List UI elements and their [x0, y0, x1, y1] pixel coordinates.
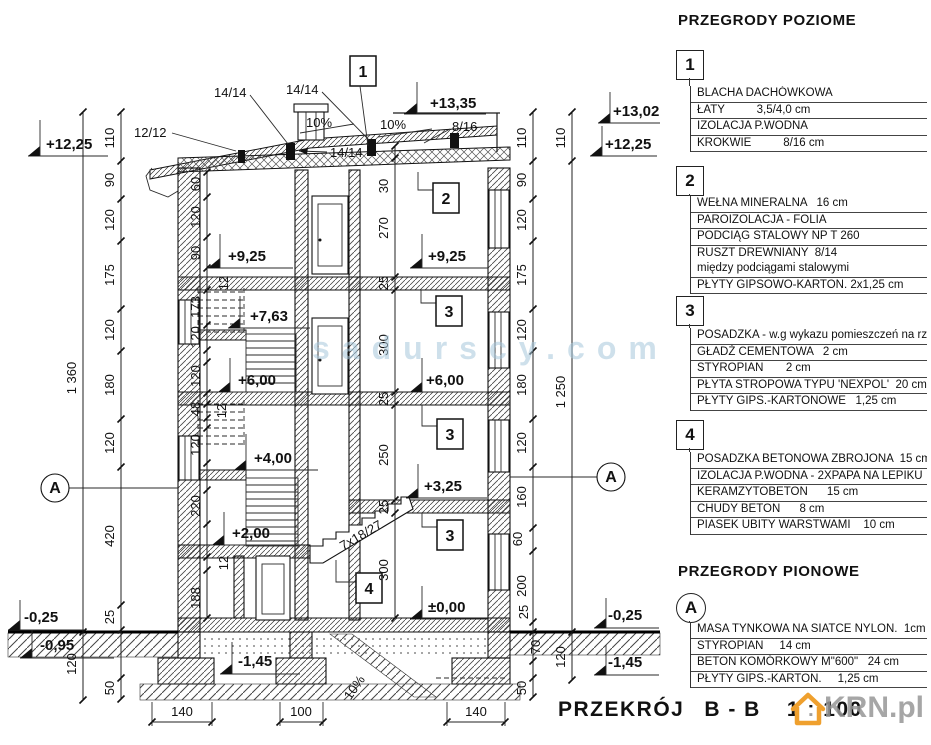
dimension-chain-right-outer: 110 1 250 120: [553, 112, 572, 680]
svg-text:+3,25: +3,25: [424, 478, 462, 495]
svg-text:220: 220: [188, 495, 203, 517]
drawing-title: PRZEKRÓJB - B1 : 100: [558, 698, 863, 722]
svg-text:120: 120: [102, 209, 117, 231]
legend-row: POSADZKA BETONOWA ZBROJONA 15 cm: [691, 452, 927, 469]
svg-text:30: 30: [376, 179, 391, 193]
legend-row: IZOLACJA P.WODNA - 2XPAPA NA LEPIKU: [691, 469, 927, 486]
svg-text:250: 250: [376, 444, 391, 466]
legend-row: WEŁNA MINERALNA 16 cm: [691, 196, 927, 213]
dimension-chain-left: 110 90 120 175 120 180 120 420 25 50: [102, 112, 121, 699]
post1-label: 14/14: [214, 85, 247, 100]
legend-marker-2: 2: [676, 166, 704, 196]
svg-text:+4,00: +4,00: [254, 450, 292, 467]
svg-text:90: 90: [514, 173, 529, 187]
legend-row: BLACHA DACHÓWKOWA: [691, 86, 927, 103]
chimney-cap: [294, 104, 328, 112]
svg-text:300: 300: [376, 334, 391, 356]
svg-text:48: 48: [188, 402, 203, 416]
ground-slab: [178, 618, 510, 632]
svg-text:180: 180: [514, 374, 529, 396]
drawing-title-name: PRZEKRÓJ: [558, 698, 684, 721]
legend-row: STYROPIAN 2 cm: [691, 361, 927, 378]
section-drawing: 7x18/27 10% 12/12 14/14 14/14 14/14: [0, 0, 665, 745]
legend-row: MASA TYNKOWA NA SIATCE NYLON. 1cm: [691, 622, 927, 639]
svg-text:1 250: 1 250: [553, 376, 568, 409]
legend-row: między podciągami stalowymi: [691, 261, 927, 278]
svg-text:420: 420: [102, 525, 117, 547]
svg-text:120: 120: [514, 319, 529, 341]
rafter-label: 8/16: [452, 119, 477, 134]
svg-text:175: 175: [102, 264, 117, 286]
svg-text:110: 110: [102, 128, 117, 149]
legend-panel: PRZEGRODY POZIOME 1 BLACHA DACHÓWKOWA ŁA…: [670, 0, 931, 745]
svg-text:60: 60: [510, 532, 525, 546]
svg-text:+13,35: +13,35: [430, 95, 476, 112]
legend-row: GŁADŹ CEMENTOWA 2 cm: [691, 345, 927, 362]
level-minus-0-25-left: -0,25: [8, 600, 84, 630]
svg-text:175: 175: [514, 264, 529, 286]
legend-item-3-rows: POSADZKA - w.g wykazu pomieszczeń na rzu…: [690, 328, 927, 411]
svg-text:25: 25: [102, 610, 117, 624]
dimension-bottom: 140 100 140: [152, 702, 505, 726]
svg-text:+12,25: +12,25: [605, 136, 651, 153]
svg-text:188: 188: [188, 587, 203, 609]
roof-post-1: [286, 143, 295, 160]
legend-marker-1: 1: [676, 50, 704, 80]
level-6-00-right: +6,00: [410, 358, 488, 392]
svg-text:1 360: 1 360: [64, 362, 79, 395]
roof-post-3: [450, 133, 459, 148]
legend-row: PŁYTA STROPOWA TYPU 'NEXPOL' 20 cm: [691, 378, 927, 395]
svg-text:12: 12: [216, 556, 231, 570]
svg-text:120: 120: [188, 434, 203, 456]
legend-row: PODCIĄG STALOWY NP T 260: [691, 229, 927, 246]
svg-text:120: 120: [188, 206, 203, 228]
section-mark-left: A: [49, 480, 61, 497]
footing-right: [452, 658, 510, 684]
legend-item-2-rows: WEŁNA MINERALNA 16 cm PAROIZOLACJA - FOL…: [690, 196, 927, 294]
legend-row: PŁYTY GIPS.-KARTONOWE 1,25 cm: [691, 394, 927, 411]
level-6-00-left: +6,00: [218, 358, 298, 392]
svg-text:-0,95: -0,95: [40, 637, 74, 654]
svg-text:120: 120: [553, 646, 568, 668]
svg-text:-1,45: -1,45: [238, 653, 272, 670]
drawing-title-scale: 1 : 100: [787, 698, 863, 721]
svg-text:120: 120: [64, 653, 79, 675]
svg-text:12: 12: [214, 404, 229, 418]
svg-text:25: 25: [376, 392, 391, 406]
ground-wall-stub: [234, 556, 244, 618]
footing-left: [158, 658, 214, 684]
svg-text:25: 25: [516, 605, 531, 619]
batten-label: 12/12: [134, 125, 167, 140]
svg-text:+6,00: +6,00: [238, 372, 276, 389]
roof-post-2: [367, 139, 376, 156]
level-13-02: +13,02: [598, 92, 660, 123]
mark-room-4: 4: [365, 581, 374, 598]
drawing-title-section: B - B: [704, 698, 761, 721]
roof-post-batten: [238, 150, 245, 163]
svg-text:120: 120: [514, 209, 529, 231]
legend-row: PŁYTY GIPSOWO-KARTON. 2x1,25 cm: [691, 278, 927, 295]
legend-item-1-rows: BLACHA DACHÓWKOWA ŁATY 3,5/4,0 cm IZOLAC…: [690, 86, 927, 152]
svg-text:+13,02: +13,02: [613, 103, 659, 120]
level-9-25-left: +9,25: [208, 234, 293, 268]
svg-text:120: 120: [514, 432, 529, 454]
svg-text:-0,25: -0,25: [608, 607, 642, 624]
svg-text:-0,25: -0,25: [24, 609, 58, 626]
svg-text:+12,25: +12,25: [46, 136, 92, 153]
svg-text:120: 120: [188, 365, 203, 387]
level-12-25-left: +12,25: [28, 120, 108, 156]
svg-text:25: 25: [376, 276, 391, 290]
legend-row: IZOLACJA P.WODNA: [691, 119, 927, 136]
svg-text:12: 12: [216, 276, 231, 290]
legend-row: STYROPIAN 14 cm: [691, 639, 927, 656]
svg-text:50: 50: [514, 681, 529, 695]
post3-label: 14/14: [330, 145, 363, 160]
section-markers: A A: [41, 463, 625, 502]
legend-row: KROKWIE 8/16 cm: [691, 136, 927, 153]
legend-row: ŁATY 3,5/4,0 cm: [691, 103, 927, 120]
svg-text:173: 173: [188, 296, 203, 318]
svg-text:70: 70: [528, 640, 543, 654]
legend-item-4-rows: POSADZKA BETONOWA ZBROJONA 15 cm IZOLACJ…: [690, 452, 927, 535]
legend-marker-A: A: [676, 593, 706, 623]
footing-center: [276, 658, 326, 684]
level-0-00: ±0,00: [410, 586, 488, 619]
svg-text:50: 50: [102, 681, 117, 695]
svg-text:+9,25: +9,25: [428, 248, 466, 265]
svg-text:100: 100: [290, 704, 312, 719]
mark-room-2: 2: [442, 191, 451, 208]
level-2-00: +2,00: [212, 512, 296, 545]
stair-run-label: 7x18/27: [337, 517, 385, 553]
dimension-chain-inner-right: 30 270 25 300 25 250 25 300: [376, 146, 395, 618]
svg-text:300: 300: [376, 559, 391, 581]
svg-text:25: 25: [376, 500, 391, 514]
svg-text:110: 110: [553, 128, 568, 149]
svg-text:140: 140: [171, 704, 193, 719]
dimension-chain-right: 110 90 120 175 120 180 120 160 60 200 25…: [510, 112, 543, 697]
legend-row: PAROIZOLACJA - FOLIA: [691, 213, 927, 230]
svg-text:-1,45: -1,45: [608, 654, 642, 671]
legend-row: PIASEK UBITY WARSTWAMI 10 cm: [691, 518, 927, 535]
legend-row: PŁYTY GIPS.-KARTON. 1,25 cm: [691, 672, 927, 689]
legend-title-horizontal: PRZEGRODY POZIOME: [678, 12, 856, 29]
legend-item-A-rows: MASA TYNKOWA NA SIATCE NYLON. 1cm STYROP…: [690, 622, 927, 688]
legend-row: KERAMZYTOBETON 15 cm: [691, 485, 927, 502]
slope-right-label: 10%: [380, 117, 406, 132]
svg-text:+9,25: +9,25: [228, 248, 266, 265]
svg-text:+7,63: +7,63: [250, 308, 288, 325]
slope-left-label: 10%: [306, 115, 332, 130]
stair-flight-dashed-upper: [198, 288, 244, 336]
legend-row: CHUDY BETON 8 cm: [691, 502, 927, 519]
level-9-25-right: +9,25: [410, 234, 488, 268]
svg-text:±0,00: ±0,00: [428, 599, 465, 616]
legend-marker-3: 3: [676, 296, 704, 326]
legend-row: RUSZT DREWNIANY 8/14: [691, 246, 927, 262]
dimension-chain-left-outer: 1 360 120: [64, 112, 83, 700]
blueprint-page: 7x18/27 10% 12/12 14/14 14/14 14/14: [0, 0, 931, 745]
section-mark-right: A: [605, 469, 617, 486]
svg-text:110: 110: [514, 128, 529, 149]
svg-text:90: 90: [102, 173, 117, 187]
mark-room-3a: 3: [445, 304, 454, 321]
svg-text:160: 160: [514, 486, 529, 508]
legend-connector: [689, 78, 690, 86]
svg-text:140: 140: [465, 704, 487, 719]
slab-325: [349, 500, 510, 513]
post2-label: 14/14: [286, 82, 319, 97]
level-13-35: +13,35: [404, 82, 486, 114]
svg-text:180: 180: [102, 374, 117, 396]
svg-text:+6,00: +6,00: [426, 372, 464, 389]
svg-text:120: 120: [188, 326, 203, 348]
legend-marker-4: 4: [676, 420, 704, 450]
svg-text:270: 270: [376, 217, 391, 239]
mark-room-3c: 3: [446, 528, 455, 545]
svg-text:90: 90: [188, 246, 203, 260]
level-3-25: +3,25: [406, 464, 487, 498]
legend-row: POSADZKA - w.g wykazu pomieszczeń na rzu…: [691, 328, 927, 345]
mark-room-3b: 3: [446, 427, 455, 444]
legend-title-vertical: PRZEGRODY PIONOWE: [678, 563, 860, 580]
svg-text:+2,00: +2,00: [232, 525, 270, 542]
svg-text:120: 120: [102, 432, 117, 454]
legend-row: BETON KOMÓRKOWY M"600" 24 cm: [691, 655, 927, 672]
svg-text:200: 200: [514, 575, 529, 597]
level-12-25-right: +12,25: [590, 126, 657, 156]
svg-text:60: 60: [188, 177, 203, 191]
partition-mark-1: 1: [359, 64, 368, 81]
level-minus-0-25-right: -0,25: [594, 598, 659, 628]
svg-text:120: 120: [102, 319, 117, 341]
